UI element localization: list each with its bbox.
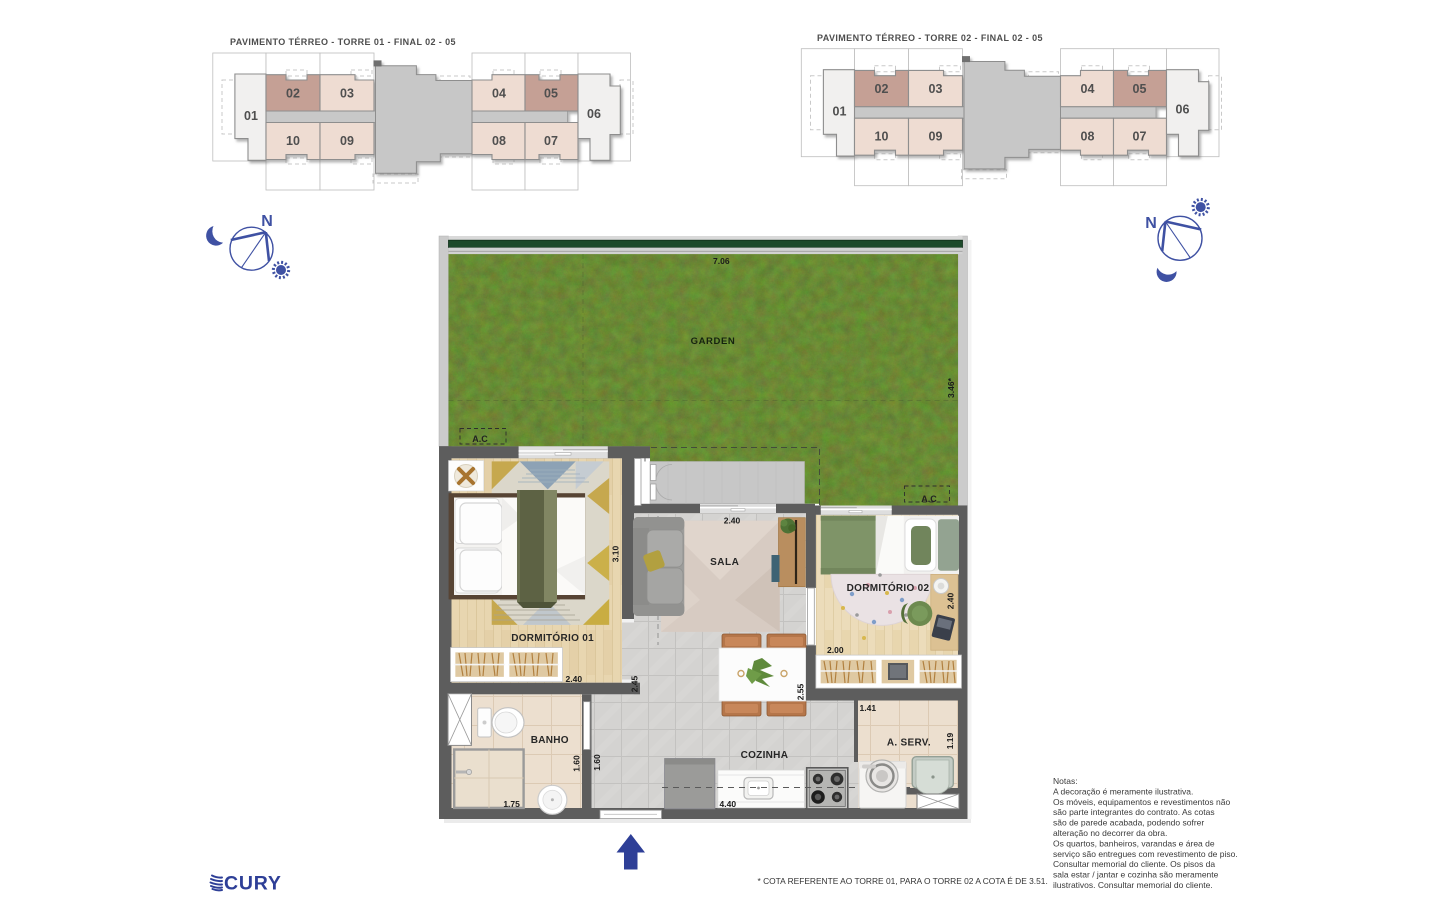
svg-text:são parte integrantes do contr: são parte integrantes do contrato. As co… [1053, 807, 1215, 817]
svg-text:3.10: 3.10 [611, 545, 621, 562]
svg-text:A.C: A.C [921, 494, 937, 504]
svg-text:1.41: 1.41 [860, 703, 877, 713]
svg-text:Notas:: Notas: [1053, 776, 1078, 786]
svg-text:2.45: 2.45 [630, 675, 640, 692]
svg-text:DORMITÓRIO 01: DORMITÓRIO 01 [511, 631, 594, 644]
svg-text:08: 08 [492, 134, 506, 148]
svg-text:06: 06 [587, 107, 601, 121]
svg-text:7.06: 7.06 [713, 256, 730, 266]
svg-text:Os móveis, equipamentos e reve: Os móveis, equipamentos e revestimentos … [1053, 797, 1230, 807]
svg-text:03: 03 [340, 87, 354, 101]
svg-text:A decoração é meramente ilustr: A decoração é meramente ilustrativa. [1053, 786, 1193, 796]
svg-text:COZINHA: COZINHA [741, 750, 789, 761]
svg-text:2.40: 2.40 [724, 516, 741, 526]
svg-text:DORMITÓRIO 02: DORMITÓRIO 02 [847, 581, 930, 594]
svg-text:Consultar memorial do cliente.: Consultar memorial do cliente. Os pisos … [1053, 859, 1215, 869]
svg-text:07: 07 [544, 134, 558, 148]
svg-text:serviço são entregues com reve: serviço são entregues com revestimento d… [1053, 849, 1238, 859]
svg-text:ilustrativos. Consultar memori: ilustrativos. Consultar memorial do clie… [1053, 880, 1213, 890]
svg-text:1.60: 1.60 [572, 755, 582, 772]
svg-text:4.40: 4.40 [720, 799, 737, 809]
svg-text:1.19: 1.19 [945, 732, 955, 749]
svg-text:2.55: 2.55 [796, 683, 806, 700]
svg-text:alteração no decorrer da obra.: alteração no decorrer da obra. [1053, 828, 1167, 838]
svg-text:05: 05 [544, 87, 558, 101]
svg-text:sala estar / jantar e cozinha: sala estar / jantar e cozinha são merame… [1053, 870, 1219, 880]
svg-text:PAVIMENTO TÉRREO - TORRE 01 -: PAVIMENTO TÉRREO - TORRE 01 - FINAL 02 -… [230, 37, 456, 47]
svg-text:3.46*: 3.46* [946, 377, 956, 398]
svg-text:são de parede acabada, podendo: são de parede acabada, podendo sofrer [1053, 818, 1204, 828]
svg-text:SALA: SALA [710, 557, 739, 568]
svg-text:01: 01 [244, 109, 258, 123]
svg-text:BANHO: BANHO [531, 735, 569, 746]
svg-text:* COTA REFERENTE AO TORRE 01,: * COTA REFERENTE AO TORRE 01, PARA O TOR… [758, 876, 1048, 886]
svg-text:04: 04 [492, 87, 506, 101]
svg-text:1.75: 1.75 [503, 799, 520, 809]
svg-text:2.40: 2.40 [566, 674, 583, 684]
svg-text:A.C: A.C [472, 434, 488, 444]
svg-text:10: 10 [286, 134, 300, 148]
svg-text:2.00: 2.00 [827, 645, 844, 655]
svg-text:A. SERV.: A. SERV. [887, 738, 931, 749]
svg-text:09: 09 [340, 134, 354, 148]
svg-text:PAVIMENTO TÉRREO - TORRE 02 -: PAVIMENTO TÉRREO - TORRE 02 - FINAL 02 -… [817, 33, 1043, 43]
svg-text:2.40: 2.40 [946, 592, 956, 609]
svg-text:N: N [1145, 215, 1157, 232]
svg-text:1.60: 1.60 [592, 754, 602, 771]
svg-text:GARDEN: GARDEN [691, 336, 736, 347]
svg-text:N: N [261, 213, 273, 230]
svg-text:Os quartos, banheiros, varanda: Os quartos, banheiros, varandas e área d… [1053, 838, 1215, 848]
svg-text:02: 02 [286, 87, 300, 101]
svg-text:CURY: CURY [224, 873, 282, 895]
